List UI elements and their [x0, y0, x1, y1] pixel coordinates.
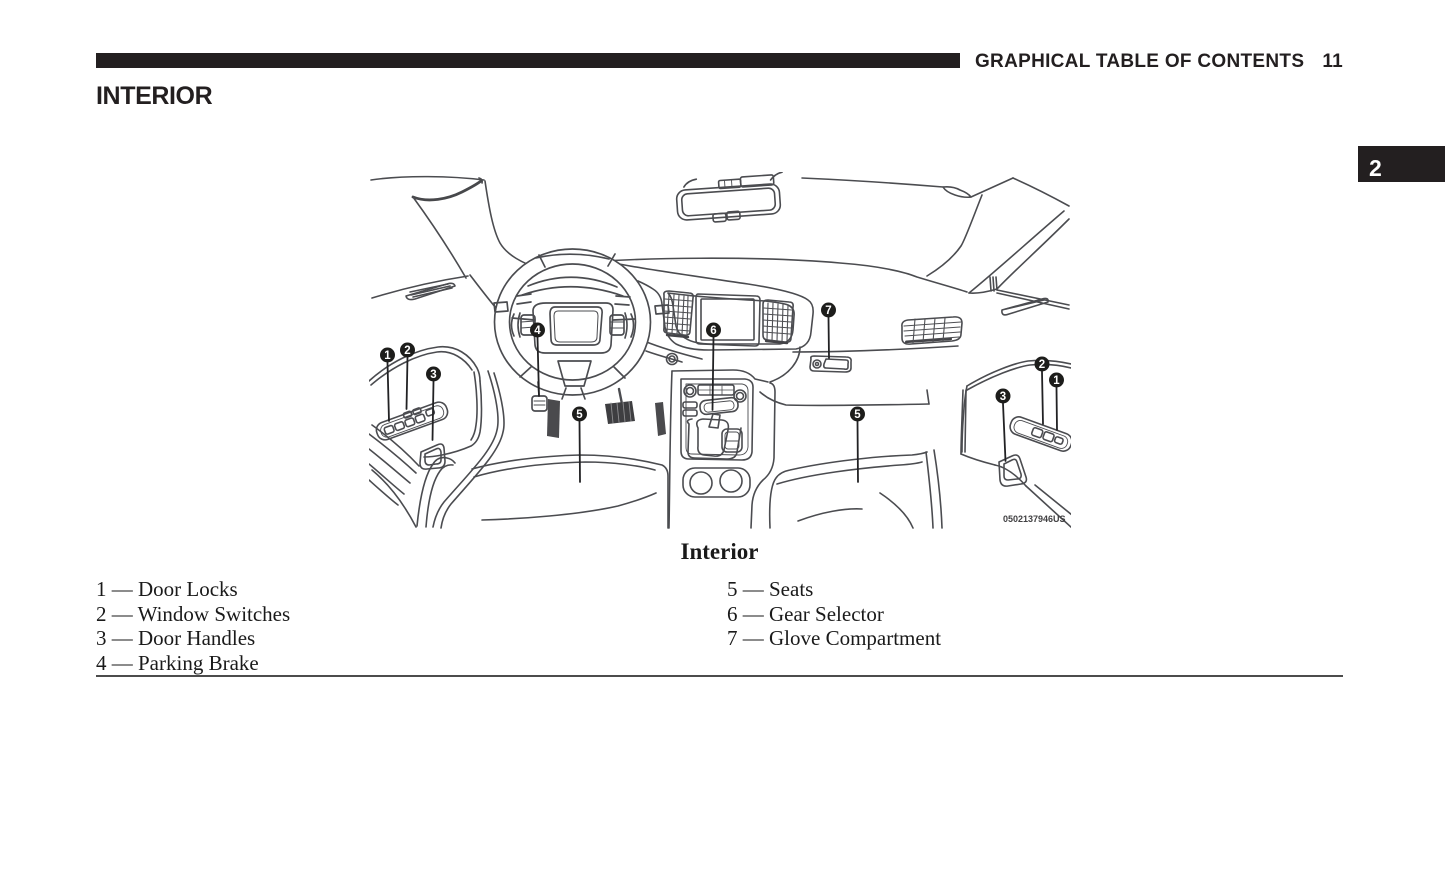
- svg-text:1: 1: [1053, 375, 1060, 387]
- svg-text:2: 2: [404, 345, 410, 357]
- svg-text:4: 4: [534, 325, 541, 337]
- svg-text:5: 5: [576, 409, 583, 421]
- svg-text:1: 1: [384, 350, 391, 362]
- svg-text:3: 3: [1000, 391, 1006, 403]
- svg-text:3: 3: [430, 369, 436, 381]
- svg-text:7: 7: [825, 305, 831, 317]
- svg-text:6: 6: [710, 325, 716, 337]
- svg-text:5: 5: [854, 409, 861, 421]
- svg-text:2: 2: [1039, 359, 1045, 371]
- svg-text:0502137946US: 0502137946US: [1003, 514, 1066, 524]
